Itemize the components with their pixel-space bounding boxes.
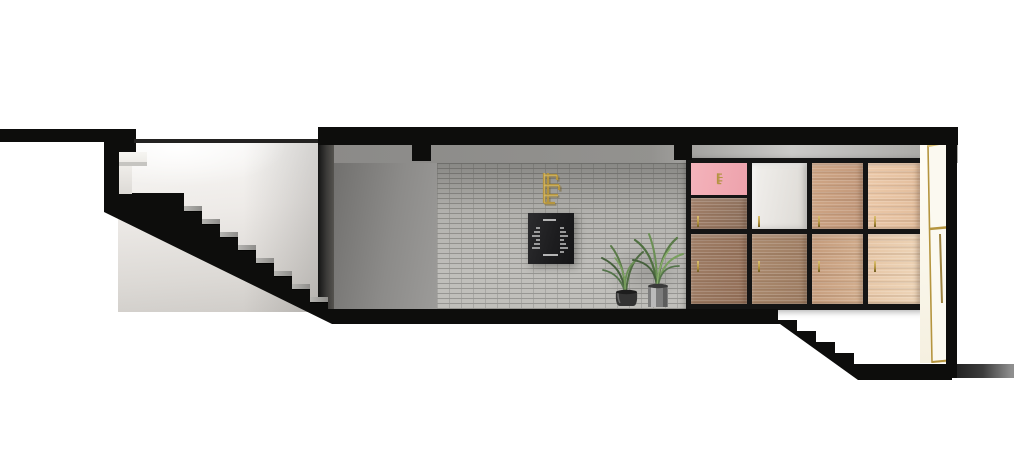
stair-tread — [184, 206, 202, 211]
stair-tread — [256, 258, 274, 263]
entry-step — [119, 166, 132, 194]
lower-ground-slab — [957, 364, 1014, 378]
roof-slab — [318, 127, 958, 145]
stair-tread — [292, 284, 310, 289]
stairs-and-floor — [104, 193, 952, 380]
upper-ground-slab — [0, 129, 112, 142]
stair-tread — [310, 297, 328, 302]
entry-ceiling-line — [134, 139, 318, 143]
stair-tread — [238, 245, 256, 250]
stair-tread — [220, 232, 238, 237]
stair-tread — [202, 219, 220, 224]
ceiling-beam-stub — [412, 145, 431, 161]
stair-tread — [274, 271, 292, 276]
ceiling-beam-stub — [674, 145, 692, 160]
section-render — [0, 0, 1024, 461]
section-cut-silhouette — [0, 0, 1024, 461]
right-wall — [946, 127, 957, 378]
